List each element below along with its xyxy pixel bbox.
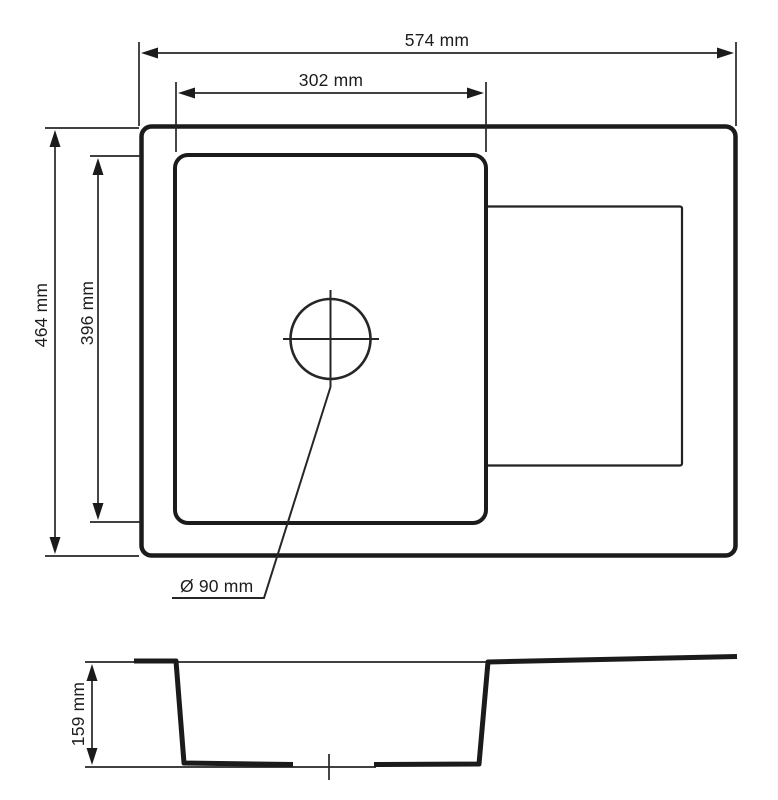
sink-technical-drawing: Ø 90 mm 574 mm 302 mm 464 mm [0,0,778,800]
top-view: Ø 90 mm [142,127,736,599]
dim-drain-diameter-label: Ø 90 mm [180,576,253,596]
dim-bowl-depth-label: 396 mm [77,281,97,345]
dim-bowl-width-arrow-left-icon [178,88,195,99]
dim-overall-depth-label: 464 mm [31,283,51,347]
section-profile-left [134,661,293,765]
dim-overall-depth-arrow-bottom-icon [50,537,61,554]
drainer-outline [482,207,682,466]
dim-bowl-depth: 396 mm [77,156,141,522]
dim-overall-width-label: 574 mm [405,30,469,50]
dim-overall-width-arrow-left-icon [141,48,158,59]
dim-bowl-width-label: 302 mm [299,70,363,90]
drawing-svg: Ø 90 mm 574 mm 302 mm 464 mm [0,0,778,800]
section-profile-right [374,657,737,765]
dim-bowl-height-arrow-top-icon [87,664,98,681]
dim-bowl-depth-arrow-bottom-icon [93,503,104,520]
dim-overall-width: 574 mm [139,30,736,126]
dim-bowl-height-label: 159 mm [68,682,88,746]
dim-overall-depth-arrow-top-icon [50,130,61,147]
dim-bowl-depth-arrow-top-icon [93,158,104,175]
dim-overall-width-arrow-right-icon [717,48,734,59]
dim-bowl-height-arrow-bottom-icon [87,748,98,765]
dim-bowl-width: 302 mm [176,70,486,152]
section-view: 159 mm [68,657,737,781]
dim-bowl-width-arrow-right-icon [467,88,484,99]
